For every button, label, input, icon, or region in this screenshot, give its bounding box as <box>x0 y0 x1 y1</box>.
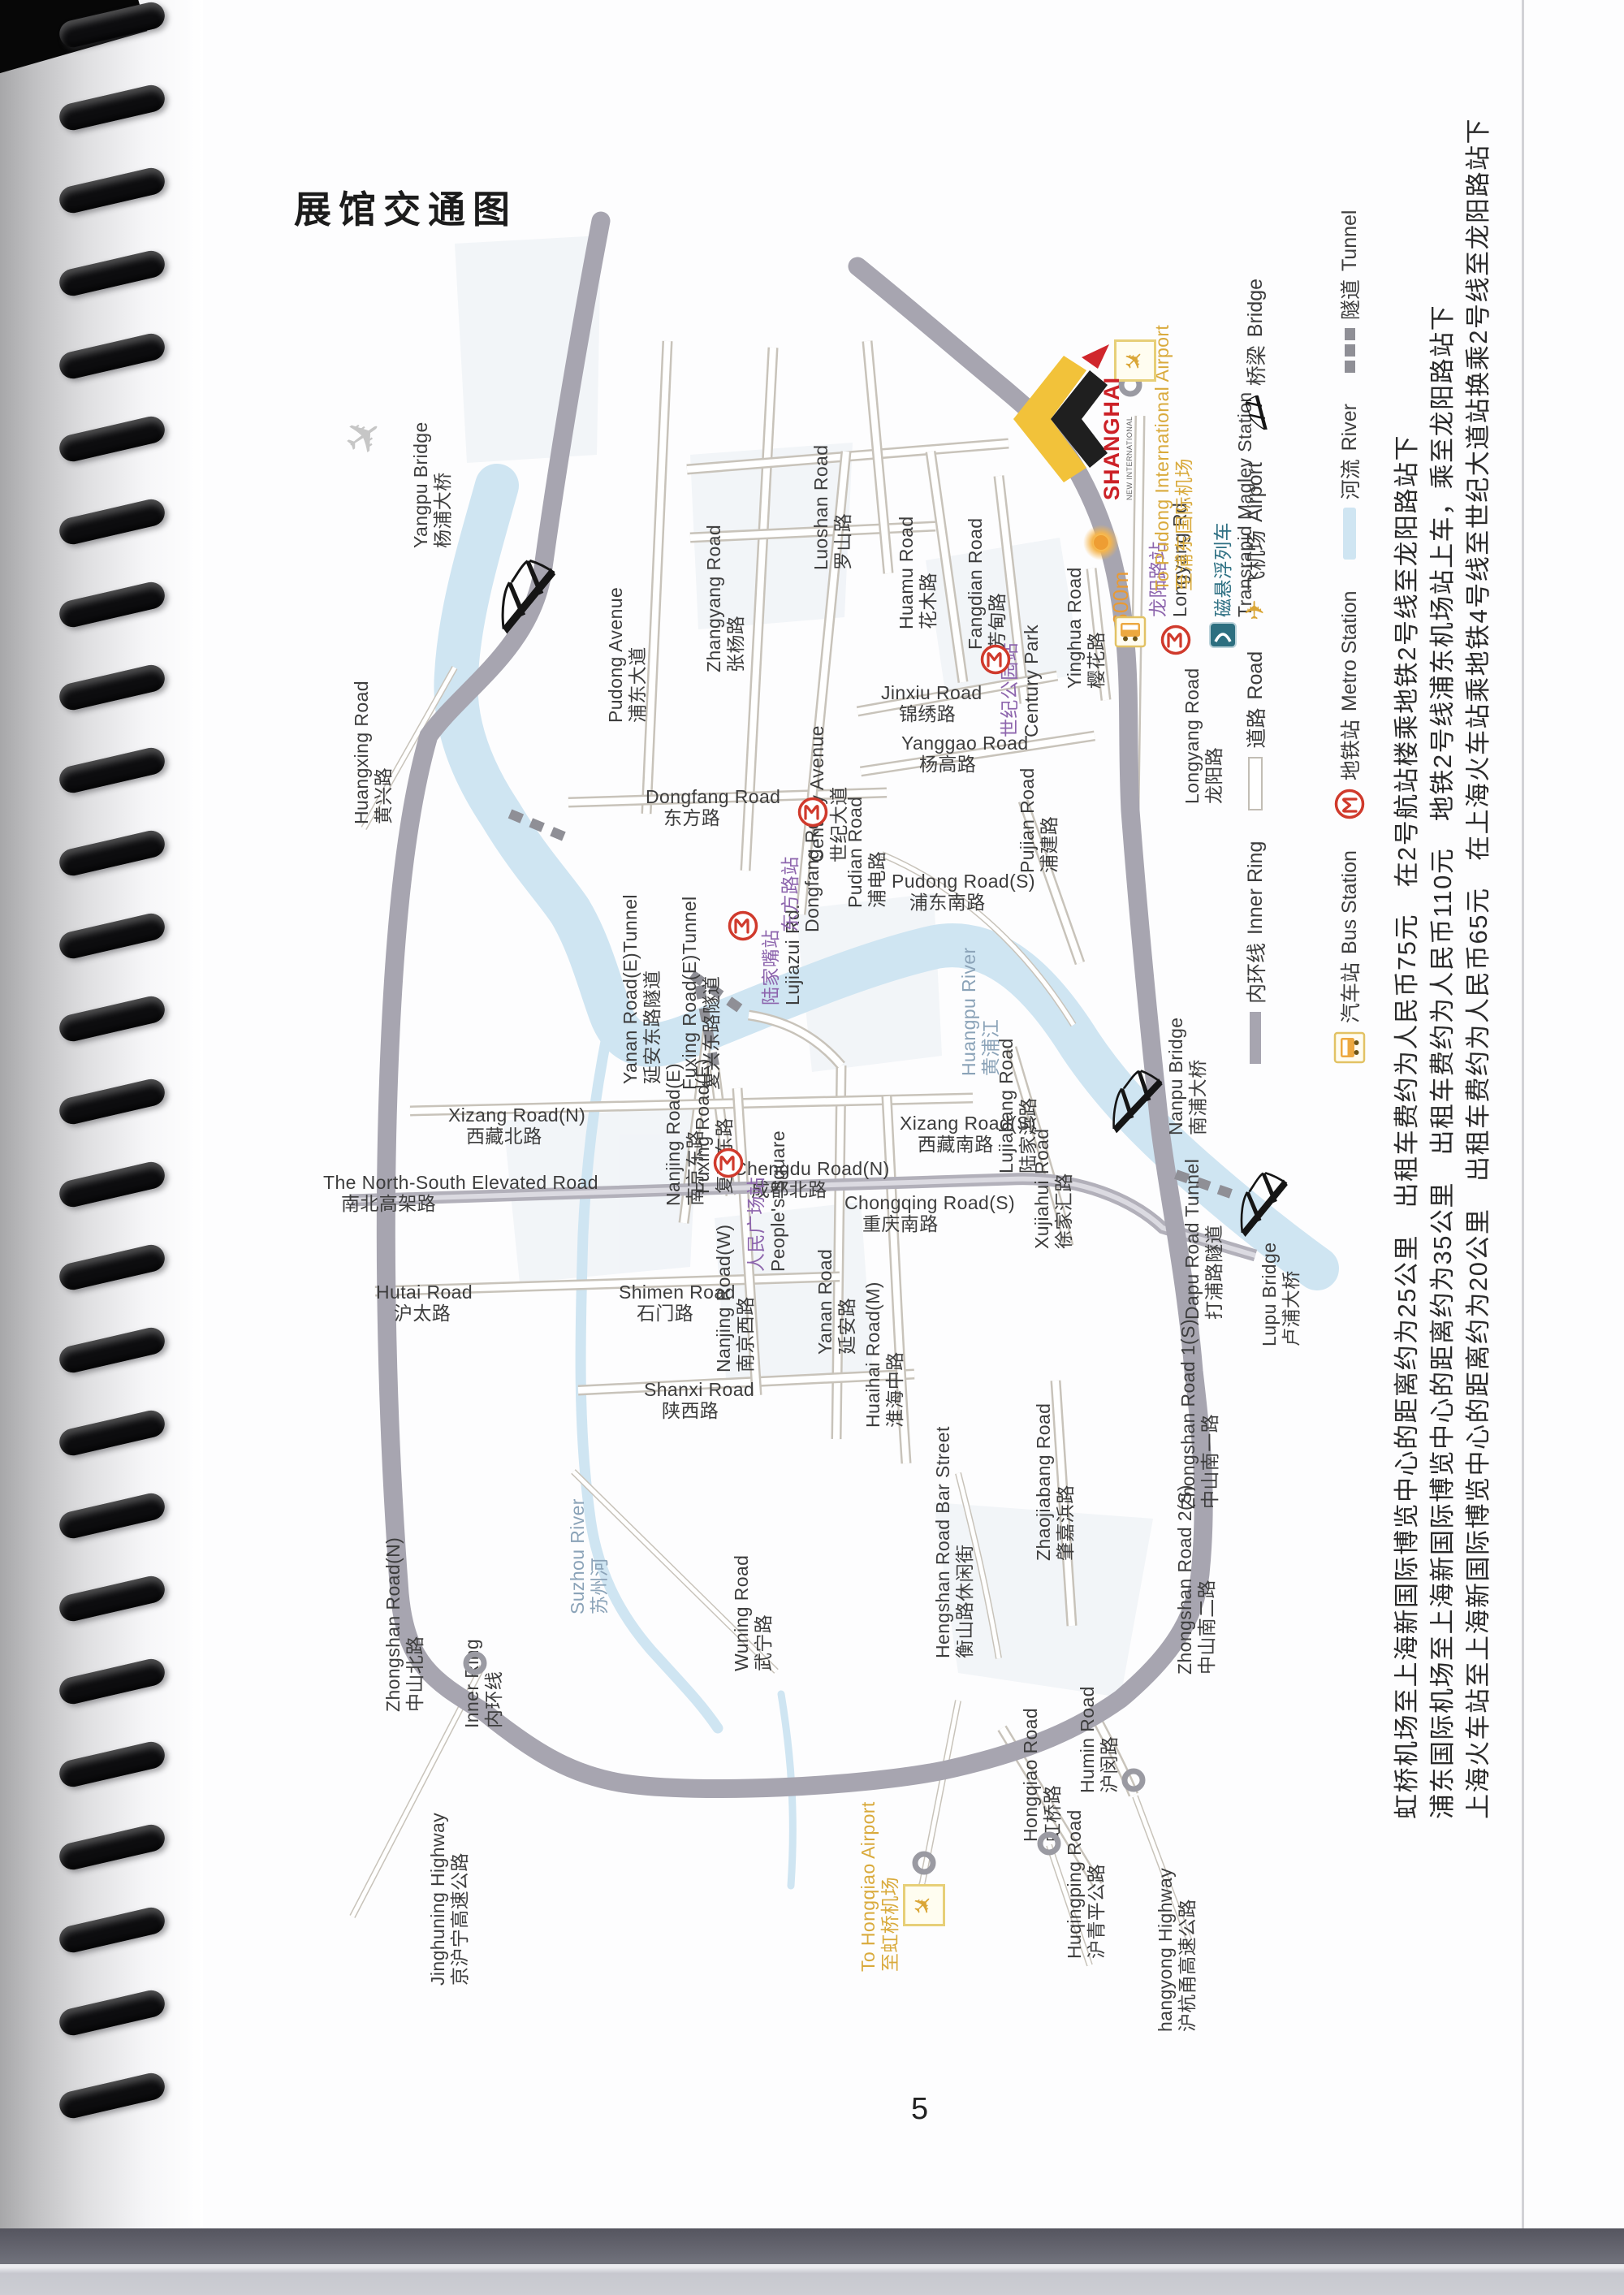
map-label-suzhou-river: Suzhou River苏州河 <box>567 1498 610 1614</box>
legend-label-en: Metro Station <box>1338 590 1362 711</box>
map-label-line: 中山南二路 <box>1196 1485 1217 1675</box>
map-label-line: Pujian Road <box>1017 767 1038 873</box>
map-label-lupu-bridge: Lupu Bridge卢浦大桥 <box>1259 1243 1302 1346</box>
map-label-xujiahui-road: Xujiahui Road徐家汇路 <box>1031 1129 1074 1249</box>
map-label-line: 陆家嘴站 <box>760 904 781 1005</box>
map-label-dongfang-road: Dongfang Road东方路 <box>646 786 780 828</box>
scanned-page: SHANGHAI NEW INTERNATIONAL EXPO CENTRE Y… <box>0 0 1624 2295</box>
map-label-line: 黄兴路 <box>373 681 394 824</box>
legend-metro-station-icon <box>1334 789 1365 819</box>
map-label-line: 杨浦大桥 <box>432 421 453 548</box>
map-label-line: Zhaojiabang Road <box>1033 1403 1054 1561</box>
map-label-line: 中山北路 <box>404 1537 425 1712</box>
map-label-line: 卢浦大桥 <box>1281 1243 1302 1346</box>
expo-centre-logo: SHANGHAI NEW INTERNATIONAL EXPO CENTRE <box>1005 341 1135 516</box>
map-label-huangxing-road: Huangxing Road黄兴路 <box>351 681 394 824</box>
map-label-line: 沪杭甬高速公路 <box>1177 1868 1198 2032</box>
map-label-line: Dapu Road Tunnel <box>1181 1159 1203 1320</box>
map-label-line: 陕西路 <box>662 1400 754 1421</box>
map-label-line: Yinghua Road <box>1064 567 1085 689</box>
legend-item-bus-station: 汽车站Bus Station <box>1333 850 1366 1064</box>
hongqiao-airport-icon: ✈ <box>903 1884 945 1926</box>
map-label-line: 重庆南路 <box>862 1213 1015 1234</box>
map-label-yanggao-road: Yanggao Road杨高路 <box>901 733 1029 775</box>
expo-centre-marker-icon <box>1082 523 1121 562</box>
map-label-huaihai-road-m: Huaihai Road(M)淮海中路 <box>862 1281 905 1428</box>
map-label-line: 延安东路隧道 <box>641 894 663 1084</box>
map-label-line: 延安路 <box>836 1249 857 1355</box>
legend-river-swatch-icon <box>1343 508 1356 560</box>
map-label-line: 淮海中路 <box>884 1281 905 1428</box>
legend-item-airport: ✈飞机场Airport <box>1241 462 1270 620</box>
airplane-glyph: ✈ <box>907 1888 942 1923</box>
interchange-icon <box>1121 1767 1147 1793</box>
map-label-nanpu-bridge: Nanpu Bridge南浦大桥 <box>1165 1018 1208 1135</box>
map-label-line: 人民广场站 <box>745 1130 767 1272</box>
map-label-pudian-road: Pudian Road浦电路 <box>844 797 888 908</box>
legend-label-en: River <box>1338 404 1362 451</box>
map-label-line: 锦绣路 <box>899 703 983 724</box>
legend-label-zh: 内环线 <box>1241 943 1270 1004</box>
orientation-airplane-icon: ✈ <box>333 404 395 470</box>
legend-item-tunnel: 隧道Tunnel <box>1335 210 1364 374</box>
map-label-line: Huqingping Road <box>1064 1809 1085 1959</box>
map-label-line: Yanan Road(E)Tunnel <box>620 894 641 1084</box>
map-label-line: Huangxing Road <box>351 681 372 824</box>
map-label-line: Lupu Bridge <box>1259 1243 1280 1346</box>
map-label-line: 浦东大道 <box>627 587 648 723</box>
metro-station-icon <box>979 643 1012 676</box>
map-label-line: Zhongshan Road 2(S) <box>1174 1485 1195 1675</box>
map-label-line: 花木路 <box>918 516 939 629</box>
map-label-line: Hongqiao Road <box>1020 1708 1041 1842</box>
map-label-line: Zhongshan Road(N) <box>382 1537 404 1712</box>
map-label-the-north-south-elevated-road: The North-South Elevated Road南北高架路 <box>323 1172 598 1214</box>
map-label-line: 西藏北路 <box>466 1126 585 1147</box>
map-label-line: 沪青平公路 <box>1086 1809 1107 1959</box>
map-label-line: 张杨路 <box>725 525 746 672</box>
map-label-line: 衡山路休闲街 <box>954 1426 975 1658</box>
tunnel-dash <box>1345 361 1355 373</box>
map-label-line: 至浦东国际机场 <box>1173 325 1194 591</box>
map-label-yanan-road-e-tunnel: Yanan Road(E)Tunnel延安东路隧道 <box>620 894 663 1084</box>
map-label-line: 浦电路 <box>866 797 888 908</box>
map-label-: 世纪公园站Century Park <box>999 625 1042 737</box>
map-label-pujian-road: Pujian Road浦建路 <box>1017 767 1060 873</box>
map-label-zhongshan-road-2-s: Zhongshan Road 2(S)中山南二路 <box>1174 1485 1217 1675</box>
map-label-line: 至虹桥机场 <box>879 1801 901 1972</box>
map-label-line: Jinghuning Highway <box>427 1813 448 1986</box>
map-label-line: 南北高架路 <box>341 1193 598 1214</box>
map-label-wuning-road: Wuning Road武宁路 <box>731 1555 774 1671</box>
map-label-chongqing-road-s: Chongqing Road(S)重庆南路 <box>844 1192 1015 1234</box>
map-label-line: 南浦大桥 <box>1187 1018 1208 1135</box>
legend-item-metro-station: 地铁站Metro Station <box>1334 590 1365 819</box>
map-label-hengshan-road-bar-street: Hengshan Road Bar Street衡山路休闲街 <box>932 1426 975 1658</box>
map-label-line: People's Square <box>767 1130 788 1272</box>
map-label-zhongshan-road-n: Zhongshan Road(N)中山北路 <box>382 1537 425 1712</box>
map-label-line: 虹桥路 <box>1042 1708 1063 1842</box>
legend-road-swatch-icon <box>1248 757 1263 810</box>
map-label-line: 苏州河 <box>589 1498 610 1614</box>
map-label-line: Xizang Road(N) <box>448 1104 585 1126</box>
map-label-line: Zhangyang Road <box>703 525 724 672</box>
map-label-line: Century Park <box>1021 625 1042 737</box>
legend-airport-plane-icon: ✈ <box>1241 599 1270 620</box>
map-label-line: Nanjing Road(W) <box>713 1225 734 1372</box>
map-label-line: Huamu Road <box>896 516 917 629</box>
metro-station-icon <box>797 796 829 828</box>
legend-item-road: 道路Road <box>1241 651 1270 810</box>
legend-label-zh: 地铁站 <box>1335 720 1364 780</box>
metro-station-icon <box>712 1147 745 1179</box>
legend-item-bridge: 桥梁Bridge <box>1239 279 1272 431</box>
legend-bus-station-icon <box>1333 1031 1366 1064</box>
map-label-to-hongqiao-airport: To Hongqiao Airport至虹桥机场 <box>857 1801 901 1972</box>
map-label-line: 沪太路 <box>394 1303 473 1324</box>
map-label-line: 沪闵路 <box>1099 1686 1120 1793</box>
metro-station-icon <box>1160 624 1192 656</box>
logo-red-accent <box>1082 344 1109 369</box>
legend-label-en: Bridge <box>1244 279 1268 337</box>
map-label-line: Hutai Road <box>376 1281 473 1303</box>
legend-label-en: Bus Station <box>1338 850 1362 954</box>
map-label-zhaojiabang-road: Zhaojiabang Road肇嘉浜路 <box>1033 1403 1076 1561</box>
map-label-line: Nanpu Bridge <box>1165 1018 1186 1135</box>
map-label-pudong-road-s: Pudong Road(S)浦东南路 <box>892 871 1035 913</box>
legend-bridge-icon <box>1239 394 1272 431</box>
tunnel-dash <box>1345 328 1355 340</box>
map-label-line: Huangpu River <box>958 947 979 1076</box>
map-label-yinghua-road: Yinghua Road樱花路 <box>1064 567 1107 689</box>
map-label-line: 肇嘉浜路 <box>1055 1403 1076 1561</box>
map-label-hongqiao-road: Hongqiao Road虹桥路 <box>1020 1708 1063 1842</box>
interchange-icon <box>911 1850 937 1876</box>
legend-label-zh: 道路 <box>1241 708 1270 749</box>
legend-row: 汽车站Bus Station地铁站Metro Station河流River隧道T… <box>1302 333 1397 1064</box>
map-legend: 内环线Inner Ring道路Road✈飞机场Airport桥梁Bridge汽车… <box>1208 333 1397 1064</box>
legend-label-zh: 汽车站 <box>1335 962 1364 1023</box>
map-label-line: Nanjing Road(E) <box>663 1063 684 1206</box>
map-label-zhangyang-road: Zhangyang Road张杨路 <box>703 525 746 672</box>
map-label-shanxi-road: Shanxi Road陕西路 <box>644 1379 754 1421</box>
map-label-yanan-road: Yanan Road延安路 <box>814 1249 857 1355</box>
page-right-edge-line <box>1522 0 1524 2228</box>
map-label-: 东方路站Dongfang Rd <box>780 819 823 932</box>
map-label-hutai-road: Hutai Road沪太路 <box>376 1281 473 1324</box>
map-label-line: 杨高路 <box>919 754 1029 775</box>
scan-bottom-light-band <box>0 2264 1624 2295</box>
legend-label-zh: 隧道 <box>1335 279 1364 320</box>
map-label-line: Longyang Road <box>1181 668 1203 804</box>
map-label-line: 浦建路 <box>1039 767 1060 873</box>
legend-label-zh: 河流 <box>1335 459 1364 499</box>
map-label-nanjing-road-e: Nanjing Road(E)南京东路 <box>663 1063 706 1206</box>
logo-text-sub1: NEW INTERNATIONAL <box>1125 417 1134 500</box>
map-label-line: Hengshan Road Bar Street <box>932 1426 953 1658</box>
scan-bottom-dark-band <box>0 2228 1624 2264</box>
legend-label-en: Airport <box>1244 462 1268 522</box>
legend-label-en: Tunnel <box>1338 210 1362 272</box>
map-label-huamu-road: Huamu Road花木路 <box>896 516 939 629</box>
map-label-line: 东方路 <box>663 807 780 828</box>
map-label-line: Pudong Road(S) <box>892 871 1035 892</box>
map-label-huqingping-road: Huqingping Road沪青平公路 <box>1064 1809 1107 1959</box>
map-label-line: 浦东南路 <box>909 892 1035 913</box>
map-label-zhongshan-road-1-s: Zhongshan Road 1(S)中山南一路 <box>1177 1319 1220 1509</box>
logo-text-shanghai: SHANGHAI <box>1099 377 1124 500</box>
interchange-icon <box>462 1650 488 1676</box>
map-label-humin-road: Humin Road沪闵路 <box>1077 1686 1120 1793</box>
map-label-line: 樱花路 <box>1086 567 1107 689</box>
map-label-line: Fangdian Road <box>965 518 986 650</box>
map-label-line: 世纪公园站 <box>999 625 1020 737</box>
map-label-line: Yangpu Bridge <box>410 421 431 548</box>
map-label-hangyong-highway: hangyong Highway沪杭甬高速公路 <box>1155 1868 1198 2032</box>
map-label-line: 中山南一路 <box>1199 1319 1220 1509</box>
map-label-line: The North-South Elevated Road <box>323 1172 598 1193</box>
legend-label-zh: 飞机场 <box>1241 530 1270 591</box>
map-label-yangpu-bridge: Yangpu Bridge杨浦大桥 <box>410 421 453 548</box>
page-number: 5 <box>911 2092 928 2127</box>
legend-row: 内环线Inner Ring道路Road✈飞机场Airport桥梁Bridge <box>1208 333 1302 1064</box>
map-label-line: 打浦路隧道 <box>1203 1159 1224 1320</box>
tunnel-dash <box>1345 344 1355 357</box>
map-label-line: To Hongqiao Airport <box>857 1801 879 1972</box>
map-label-line: hangyong Highway <box>1155 1868 1176 2032</box>
page-title: 展馆交通图 <box>294 180 517 234</box>
map-label-line: Humin Road <box>1077 1686 1098 1793</box>
metro-station-icon <box>727 910 759 942</box>
map-label-luoshan-road: Luoshan Road罗山路 <box>810 445 853 570</box>
legend-tunnel-swatch-icon <box>1345 328 1355 373</box>
map-label-jinxiu-road: Jinxiu Road锦绣路 <box>881 682 983 724</box>
map-label-line: Xujiahui Road <box>1031 1129 1052 1249</box>
map-label-jinghuning-highway: Jinghuning Highway京沪宁高速公路 <box>427 1813 470 1986</box>
bus-station-icon <box>1112 614 1148 650</box>
map-label-line: Luoshan Road <box>810 445 831 570</box>
map-label-line: 罗山路 <box>832 445 853 570</box>
map-label-line: 徐家汇路 <box>1053 1129 1074 1249</box>
map-label-line: Dongfang Road <box>646 786 780 807</box>
legend-label-en: Inner Ring <box>1244 841 1268 935</box>
map-label-line: Pudian Road <box>844 797 866 908</box>
map-label-line: Yanan Road <box>814 1249 836 1355</box>
map-label-pudong-avenue: Pudong Avenue浦东大道 <box>605 587 648 723</box>
legend-item-inner-ring: 内环线Inner Ring <box>1241 841 1270 1064</box>
legend-item-river: 河流River <box>1335 404 1364 560</box>
interchange-icon <box>1036 1830 1062 1856</box>
map-label-line: Chongqing Road(S) <box>844 1192 1015 1213</box>
map-label-line: 武宁路 <box>753 1555 774 1671</box>
map-label-line: Pudong Avenue <box>605 587 626 723</box>
map-label-line: Wuning Road <box>731 1555 752 1671</box>
map-label-line: Jinxiu Road <box>881 682 983 703</box>
map-label-dapu-road-tunnel: Dapu Road Tunnel打浦路隧道 <box>1181 1159 1224 1320</box>
map-label-line: Zhongshan Road 1(S) <box>1177 1319 1199 1509</box>
map-label-line: 东方路站 <box>780 819 801 932</box>
legend-inner-ring-swatch-icon <box>1250 1012 1261 1064</box>
legend-label-en: Road <box>1244 651 1268 700</box>
map-label-xizang-road-n: Xizang Road(N)西藏北路 <box>448 1104 585 1147</box>
map-label-: 人民广场站People's Square <box>745 1130 788 1272</box>
map-label-line: Lujiabang Road <box>996 1038 1017 1173</box>
map-label-line: Shanxi Road <box>644 1379 754 1400</box>
map-label-line: Dongfang Rd <box>801 819 823 932</box>
map-label-line: 京沪宁高速公路 <box>449 1813 470 1986</box>
map-label-line: Huaihai Road(M) <box>862 1281 883 1428</box>
map-label-line: 南京东路 <box>685 1063 706 1206</box>
legend-label-zh: 桥梁 <box>1241 345 1270 386</box>
map-label-line: Suzhou River <box>567 1498 588 1614</box>
map-label-to-pudong-international-airport: To Pudong International Airport至浦东国际机场 <box>1151 325 1194 591</box>
